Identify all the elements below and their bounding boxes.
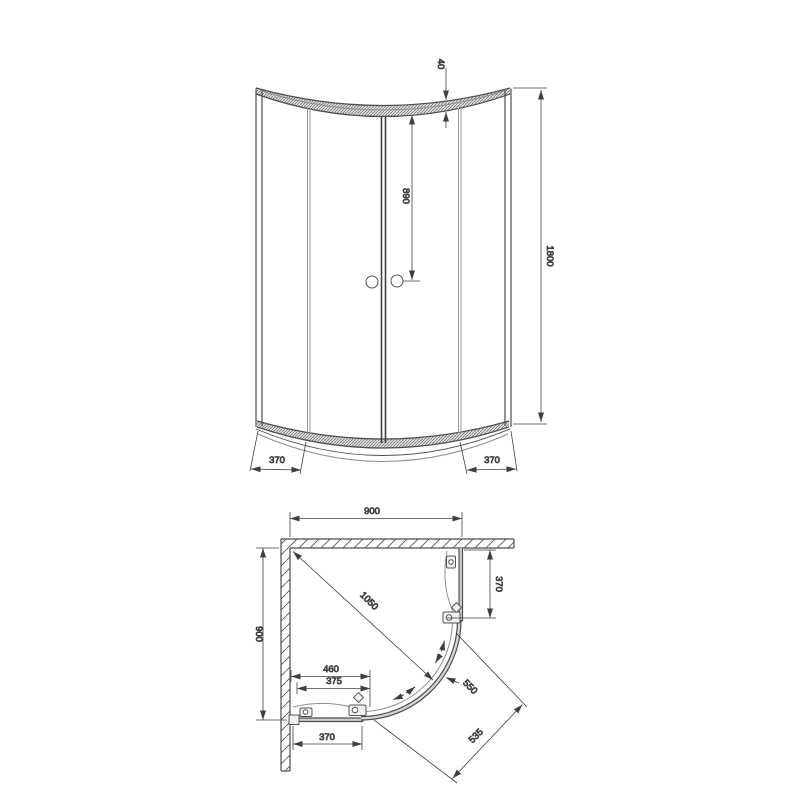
dim-radius-label: 535 — [467, 727, 486, 746]
roller-bracket-left — [300, 708, 312, 717]
dim-plan-width-label: 900 — [364, 506, 380, 517]
track-inner-arc — [361, 620, 458, 717]
handle-knob-bottom — [354, 693, 364, 703]
dim-total-height: 1800 — [513, 88, 555, 424]
top-wall-hatch — [281, 539, 514, 548]
left-fixed-panel-seam — [308, 108, 311, 434]
dim-plan-depth-label: 900 — [253, 626, 264, 642]
top-rail-band — [256, 88, 510, 117]
dim-door-width-label: 550 — [460, 678, 479, 697]
left-wall-profile — [256, 89, 262, 428]
right-door-handle — [391, 275, 403, 287]
dim-entry-inner-label: 375 — [326, 676, 342, 687]
roller-bracket-right — [443, 603, 461, 623]
roller-bracket-top — [447, 556, 456, 568]
dim-plan-width: 900 — [290, 506, 462, 537]
left-wall-hatch — [281, 539, 290, 771]
dim-handle-height-label: 890 — [400, 188, 411, 204]
dim-diagonal: 1050 — [293, 552, 433, 681]
plan-view: 900 900 370 1050 550 — [253, 506, 527, 783]
dim-total-height-label: 1800 — [544, 245, 555, 266]
dim-side-panel-label: 370 — [493, 576, 504, 592]
roller-bracket-bottom — [349, 693, 366, 716]
dim-left-panel-label: 370 — [269, 455, 285, 466]
dim-handle-height: 890 — [400, 115, 420, 281]
technical-drawing: 40 890 1800 370 370 — [0, 0, 800, 800]
dim-door-width: 550 — [446, 678, 479, 697]
dim-entry-outer-label: 460 — [323, 664, 339, 675]
front-elevation-view: 40 890 1800 370 370 — [250, 59, 555, 474]
right-fixed-panel-seam — [459, 108, 462, 434]
dim-bottom-panel-label: 370 — [319, 732, 335, 743]
dim-profile-height: 40 — [435, 59, 446, 128]
dim-entry-inner: 375 — [297, 676, 370, 694]
dim-bottom-panel: 370 — [293, 726, 362, 750]
door-center-stiles — [382, 117, 386, 443]
wall-profile-end — [289, 715, 299, 725]
left-door-handle — [366, 276, 378, 288]
track-band — [361, 620, 461, 720]
dim-profile-height-label: 40 — [435, 59, 446, 70]
door-motion-arrow-lower — [393, 687, 415, 700]
dim-right-panel-label: 370 — [484, 455, 500, 466]
sliding-door-glass-arc — [362, 621, 453, 712]
dim-diagonal-label: 1050 — [357, 590, 380, 613]
bottom-rail-band — [257, 421, 509, 448]
right-wall-profile — [505, 89, 511, 428]
